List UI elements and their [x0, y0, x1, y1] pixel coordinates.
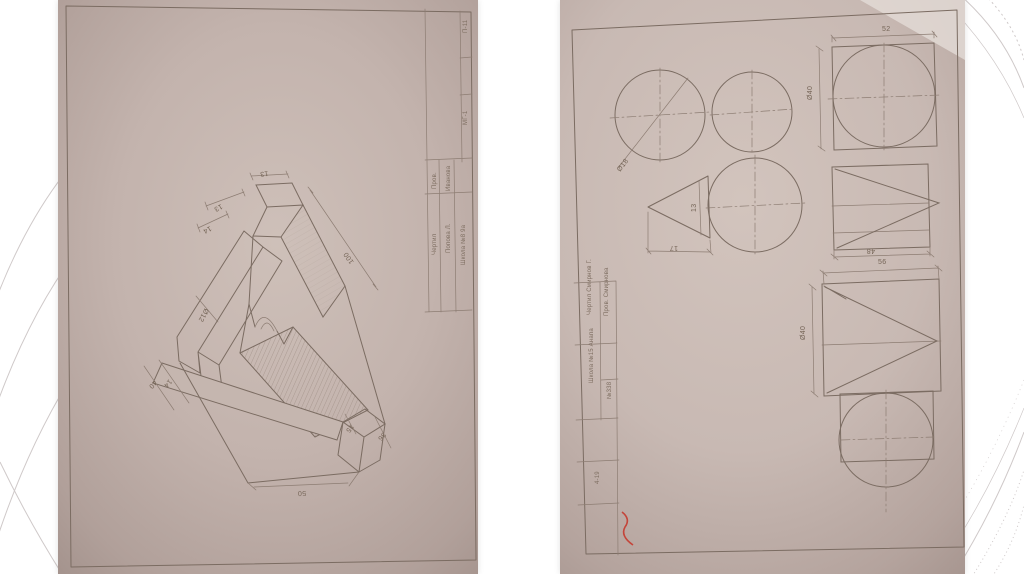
- photo-left-drawing: П-11 МГ-1 Чертил Попова Л. Пров. Иванова…: [58, 0, 478, 574]
- cylinder-bottom-view: [839, 390, 934, 512]
- stamp-note: Школа №8 9а: [460, 224, 467, 265]
- title-block-left-text: П-11 МГ-1 Чертил Попова Л. Пров. Иванова…: [432, 19, 469, 265]
- title-block-left: [425, 9, 472, 312]
- dim-50: 50: [298, 489, 307, 496]
- cone-side-view: [831, 164, 939, 260]
- stamp-row1-label: Чертил: [432, 233, 438, 255]
- stamp-corner-top: П-11: [463, 19, 469, 33]
- dim-dia12: Ø12: [197, 307, 210, 323]
- dim-13-top: 13: [259, 169, 268, 177]
- stamp-b-note: Школа №15 Анапа: [588, 328, 595, 383]
- photo-right-drawing: Чертил Смирнов Г. Пров. Смирнова Школа №…: [560, 0, 965, 574]
- dim-dia40-top: Ø40: [807, 86, 814, 100]
- presentation-slide: П-11 МГ-1 Чертил Попова Л. Пров. Иванова…: [0, 0, 1024, 574]
- stamp-b-row2: Пров. Смирнова: [604, 267, 610, 316]
- dim-56: 56: [878, 259, 886, 266]
- isometric-drawing-sheet: П-11 МГ-1 Чертил Попова Л. Пров. Иванова…: [58, 0, 478, 574]
- red-grade-mark: [622, 512, 633, 545]
- stamp-b-row1: Чертил Смирнов Г.: [587, 259, 593, 315]
- dim-17-cone: 17: [670, 244, 678, 251]
- sheet-frame: [66, 6, 476, 567]
- circle-views: [610, 68, 805, 256]
- dim-13-left: 13: [213, 202, 224, 212]
- sheet-frame-right: [572, 10, 964, 554]
- dim-36: 36: [376, 431, 387, 442]
- stamp-corner-mid: МГ-1: [463, 110, 469, 125]
- dim-dia40-bot: Ø40: [800, 326, 807, 340]
- title-block-right: [574, 281, 619, 555]
- dim-52: 52: [882, 26, 890, 33]
- stamp-row1-value: Попова Л.: [446, 223, 452, 253]
- stamp-b-code: №338: [606, 381, 613, 399]
- stamp-b-bottom: 4-19: [595, 471, 601, 484]
- dim-13-cone: 13: [691, 204, 698, 212]
- dim-48: 48: [867, 247, 875, 254]
- cylinder-top-view: [816, 31, 940, 151]
- photo-background: [860, 0, 965, 60]
- stamp-row2-value: Иванова: [446, 165, 452, 191]
- dim-100: 100: [343, 251, 356, 265]
- cone-triangle-view: [646, 176, 713, 255]
- projection-drawing-sheet: Чертил Смирнов Г. Пров. Смирнова Школа №…: [560, 0, 965, 574]
- dim-dia18: Ø18: [616, 158, 630, 173]
- dimension-labels-left: 13 13 14 Ø12 100 40 14 15 36 50: [147, 169, 387, 496]
- stamp-row2-label: Пров.: [432, 172, 438, 189]
- isometric-part: [153, 183, 385, 483]
- prism-front-view: [809, 265, 942, 397]
